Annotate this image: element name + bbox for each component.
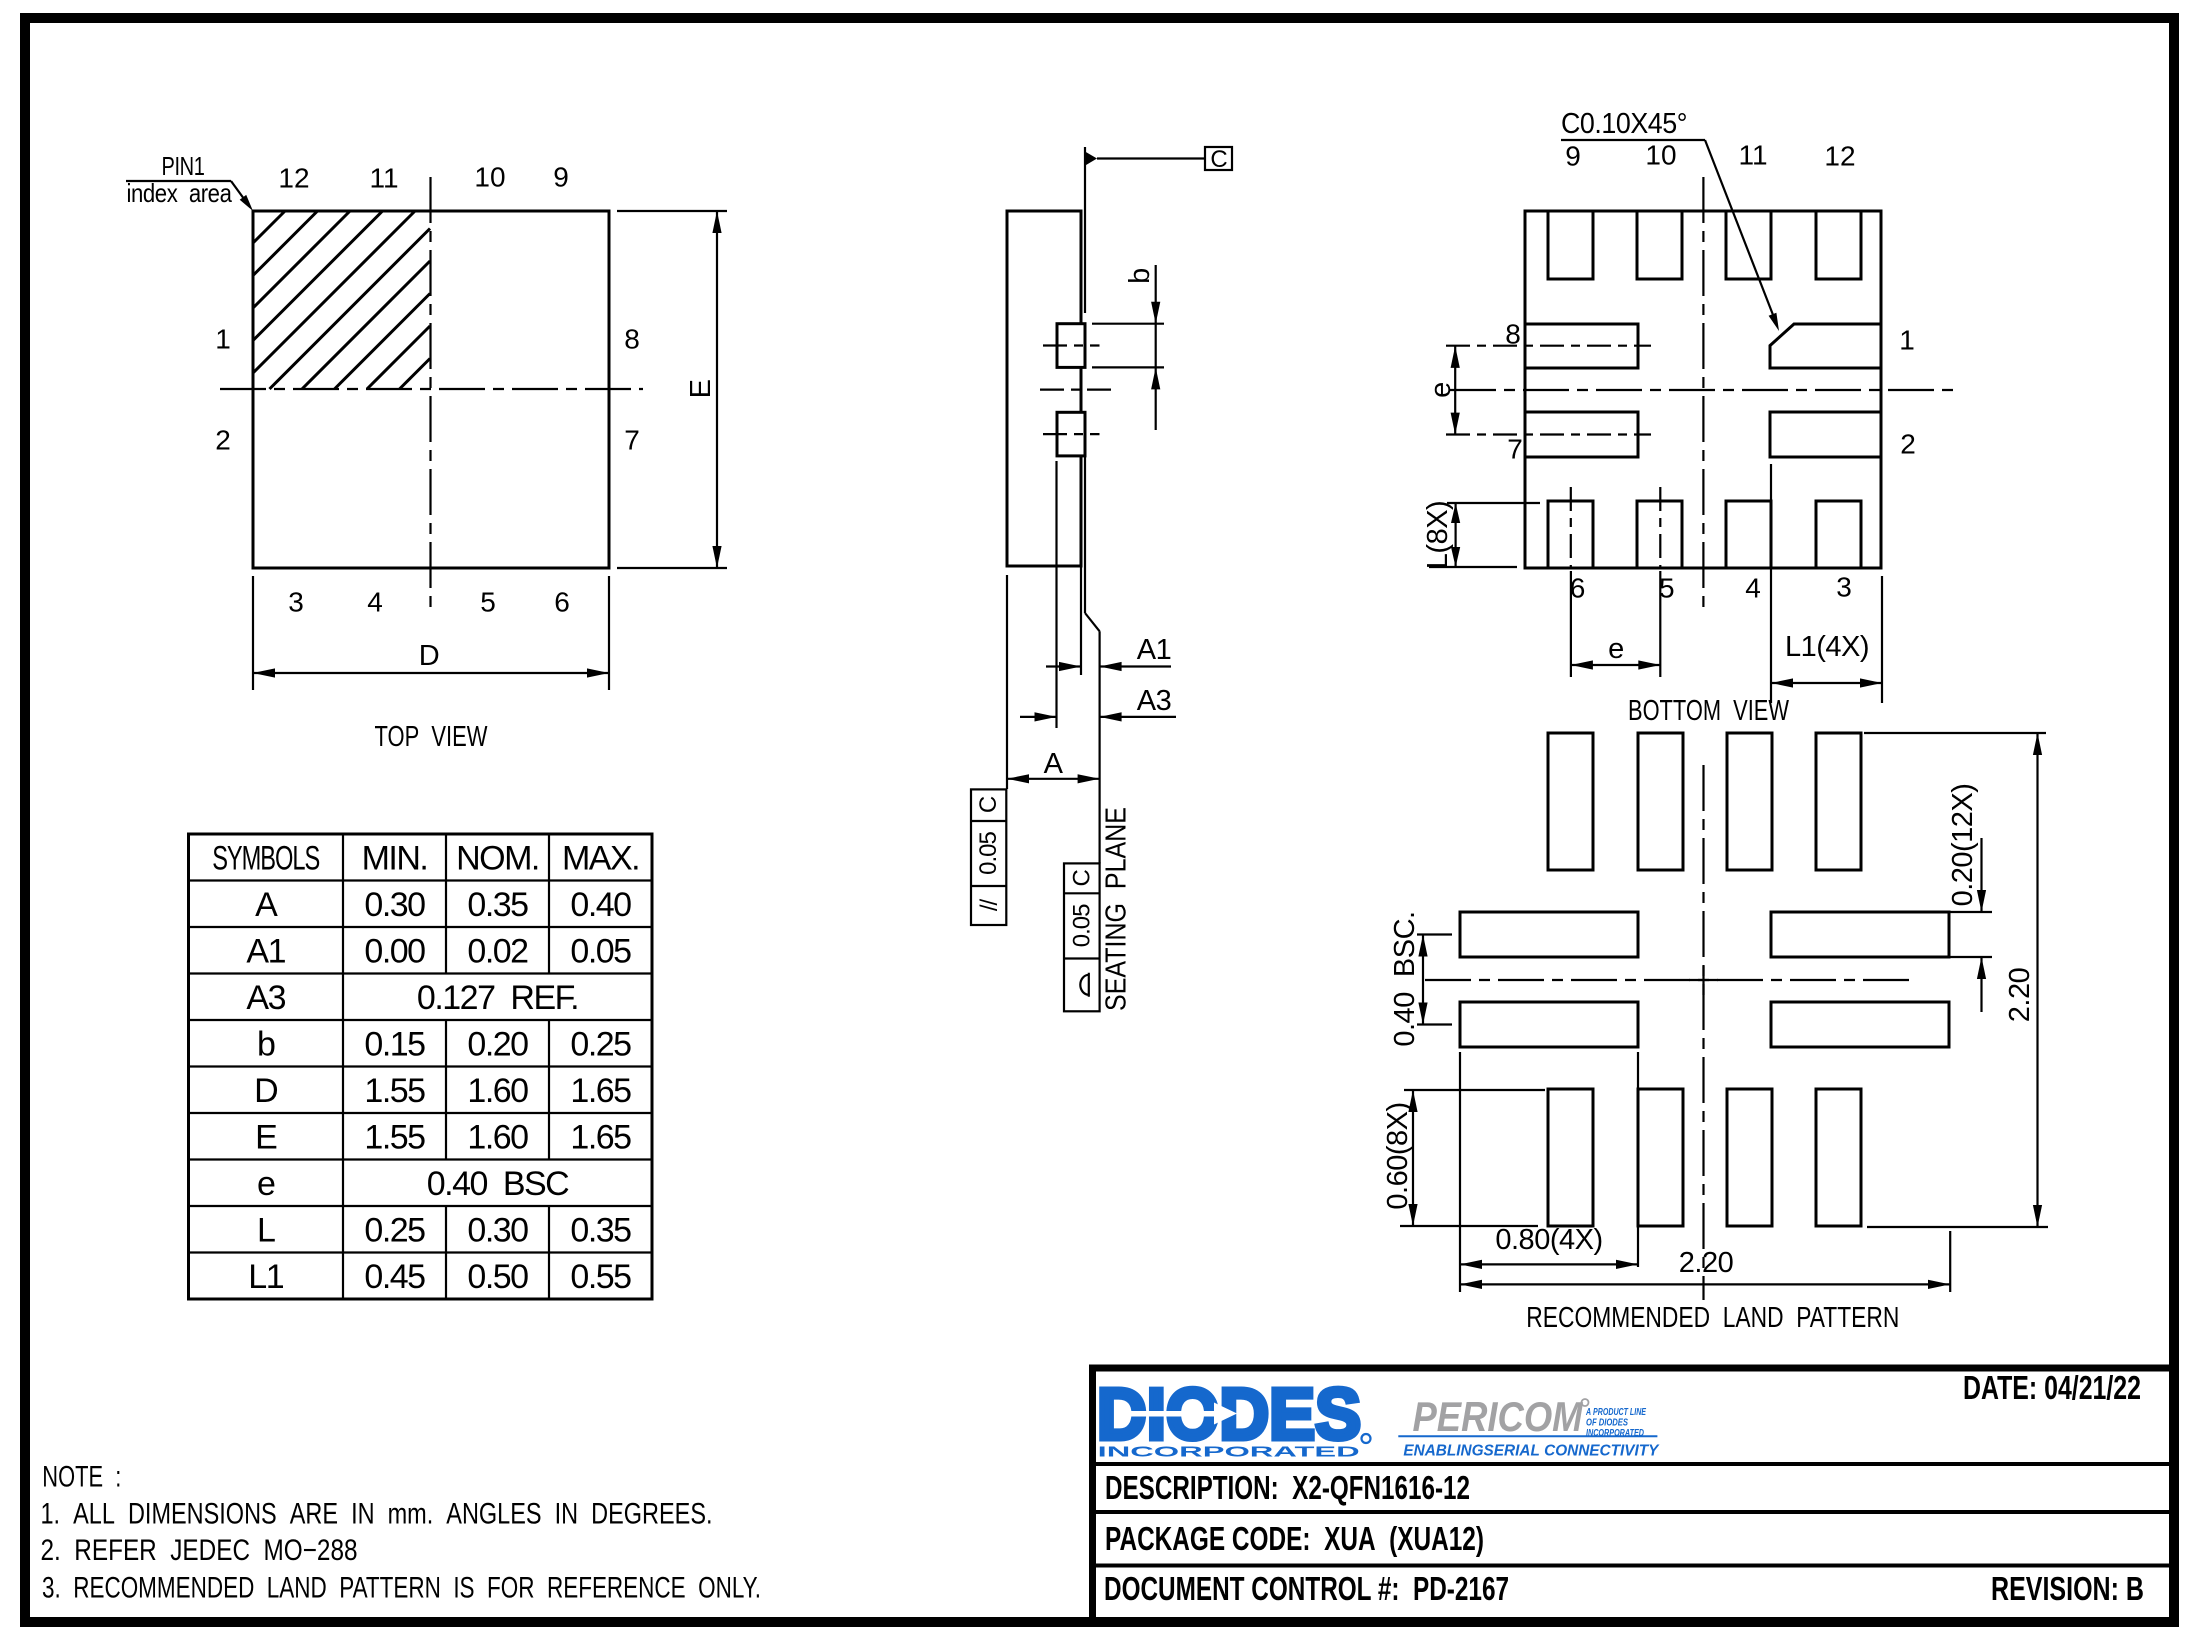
svg-text:DATE: 04/21/22: DATE: 04/21/22: [1963, 1369, 2141, 1406]
svg-text://: //: [976, 899, 1003, 912]
svg-text:0.40 BSC.: 0.40 BSC.: [1389, 911, 1421, 1046]
svg-text:6: 6: [554, 587, 570, 618]
svg-text:1.65: 1.65: [570, 1118, 631, 1156]
svg-text:C: C: [1068, 869, 1095, 886]
svg-text:DESCRIPTION: X2-QFN1616-12: DESCRIPTION: X2-QFN1616-12: [1105, 1469, 1470, 1506]
svg-text:NOM.: NOM.: [456, 839, 539, 877]
svg-text:C: C: [975, 796, 1002, 813]
svg-text:C0.10X45°: C0.10X45°: [1561, 108, 1687, 140]
svg-text:MIN.: MIN.: [362, 839, 428, 877]
svg-text:5: 5: [480, 587, 496, 618]
svg-text:0.05: 0.05: [1068, 904, 1095, 947]
svg-text:0.00: 0.00: [364, 932, 425, 970]
svg-text:7: 7: [1507, 434, 1523, 465]
svg-text:NOTE :: NOTE :: [42, 1461, 121, 1494]
svg-text:7: 7: [624, 425, 640, 456]
svg-text:0.25: 0.25: [364, 1211, 425, 1249]
svg-text:9: 9: [1565, 141, 1581, 172]
svg-text:3: 3: [288, 587, 304, 618]
svg-text:1: 1: [1899, 325, 1915, 356]
svg-text:A1: A1: [1137, 634, 1171, 666]
svg-text:e: e: [1608, 633, 1624, 665]
svg-text:SEATING PLANE: SEATING PLANE: [1101, 807, 1133, 1011]
svg-text:TOP VIEW: TOP VIEW: [375, 721, 488, 753]
svg-text:2. REFER JEDEC MO−288: 2. REFER JEDEC MO−288: [41, 1534, 358, 1567]
svg-text:D: D: [254, 1072, 277, 1110]
svg-text:12: 12: [278, 163, 309, 194]
svg-text:0.35: 0.35: [467, 886, 528, 924]
svg-text:PACKAGE CODE: XUA (XUA12): PACKAGE CODE: XUA (XUA12): [1105, 1520, 1484, 1557]
svg-text:0.20: 0.20: [467, 1025, 528, 1063]
svg-text:0.40 BSC: 0.40 BSC: [427, 1165, 569, 1203]
svg-text:L(8X): L(8X): [1422, 501, 1454, 569]
svg-text:6: 6: [1570, 573, 1586, 604]
svg-text:E: E: [255, 1118, 277, 1156]
svg-text:A: A: [1044, 748, 1064, 780]
svg-text:C: C: [1210, 146, 1227, 173]
svg-text:INCORPORATED: INCORPORATED: [1098, 1444, 1360, 1461]
svg-text:L1(4X): L1(4X): [1785, 631, 1869, 663]
svg-text:b: b: [257, 1025, 275, 1063]
svg-text:D: D: [419, 640, 439, 672]
svg-text:10: 10: [1645, 140, 1676, 171]
svg-text:2.20: 2.20: [2004, 968, 2036, 1022]
svg-text:1: 1: [215, 324, 231, 355]
svg-text:11: 11: [1738, 140, 1767, 171]
svg-text:0.05: 0.05: [975, 831, 1002, 874]
svg-text:RECOMMENDED LAND PATTERN: RECOMMENDED LAND PATTERN: [1526, 1302, 1899, 1334]
svg-text:0.25: 0.25: [570, 1025, 631, 1063]
svg-text:PIN1: PIN1: [162, 151, 205, 181]
svg-text:4: 4: [367, 587, 383, 618]
svg-text:0.05: 0.05: [570, 932, 631, 970]
svg-text:L: L: [257, 1211, 275, 1249]
svg-text:8: 8: [624, 324, 640, 355]
svg-text:0.30: 0.30: [467, 1211, 528, 1249]
svg-text:b: b: [1124, 268, 1156, 284]
svg-text:1.60: 1.60: [467, 1072, 528, 1110]
svg-text:1.65: 1.65: [570, 1072, 631, 1110]
svg-text:0.20(12X): 0.20(12X): [1947, 784, 1979, 907]
svg-text:1.55: 1.55: [364, 1118, 425, 1156]
svg-text:index area: index area: [127, 178, 233, 208]
svg-text:0.30: 0.30: [364, 886, 425, 924]
svg-text:0.02: 0.02: [467, 932, 528, 970]
svg-text:A3: A3: [246, 979, 285, 1017]
svg-text:0.127 REF.: 0.127 REF.: [417, 979, 578, 1017]
svg-text:ENABLINGSERIAL CONNECTIVITY: ENABLINGSERIAL CONNECTIVITY: [1403, 1443, 1659, 1460]
svg-text:0.45: 0.45: [364, 1258, 425, 1296]
svg-text:3. RECOMMENDED LAND PATTERN: 3. RECOMMENDED LAND PATTERN IS FOR REFER…: [42, 1572, 761, 1605]
svg-text:1.60: 1.60: [467, 1118, 528, 1156]
svg-text:SYMBOLS: SYMBOLS: [212, 839, 320, 877]
svg-text:0.60(8X): 0.60(8X): [1382, 1102, 1414, 1209]
svg-text:e: e: [257, 1165, 275, 1203]
svg-text:0.50: 0.50: [467, 1258, 528, 1296]
svg-text:BOTTOM VIEW: BOTTOM VIEW: [1628, 695, 1789, 727]
svg-text:8: 8: [1505, 319, 1521, 350]
svg-text:REVISION: B: REVISION: B: [1991, 1570, 2144, 1607]
svg-text:MAX.: MAX.: [562, 839, 639, 877]
svg-text:0.80(4X): 0.80(4X): [1495, 1224, 1602, 1256]
svg-text:0.35: 0.35: [570, 1211, 631, 1249]
svg-text:L1: L1: [248, 1258, 283, 1296]
svg-text:A: A: [255, 886, 278, 924]
svg-text:10: 10: [474, 162, 505, 193]
svg-text:9: 9: [553, 162, 569, 193]
svg-text:1. ALL DIMENSIONS ARE IN: 1. ALL DIMENSIONS ARE IN mm. ANGLES IN D…: [41, 1498, 713, 1531]
svg-text:4: 4: [1745, 573, 1761, 604]
svg-text:A3: A3: [1137, 685, 1171, 717]
svg-text:DOCUMENT CONTROL #: PD-2167: DOCUMENT CONTROL #: PD-2167: [1104, 1570, 1509, 1607]
svg-text:0.15: 0.15: [364, 1025, 425, 1063]
svg-text:1.55: 1.55: [364, 1072, 425, 1110]
svg-text:E: E: [685, 379, 717, 398]
svg-text:2: 2: [1900, 429, 1916, 460]
svg-text:12: 12: [1824, 141, 1855, 172]
svg-text:A1: A1: [246, 932, 285, 970]
svg-text:PERICOM: PERICOM: [1413, 1393, 1584, 1440]
svg-text:0.40: 0.40: [570, 886, 631, 924]
svg-text:0.55: 0.55: [570, 1258, 631, 1296]
svg-text:2.20: 2.20: [1679, 1247, 1733, 1279]
svg-text:2: 2: [215, 425, 231, 456]
svg-text:11: 11: [369, 163, 398, 194]
svg-text:e: e: [1425, 382, 1457, 398]
svg-text:3: 3: [1836, 572, 1852, 603]
